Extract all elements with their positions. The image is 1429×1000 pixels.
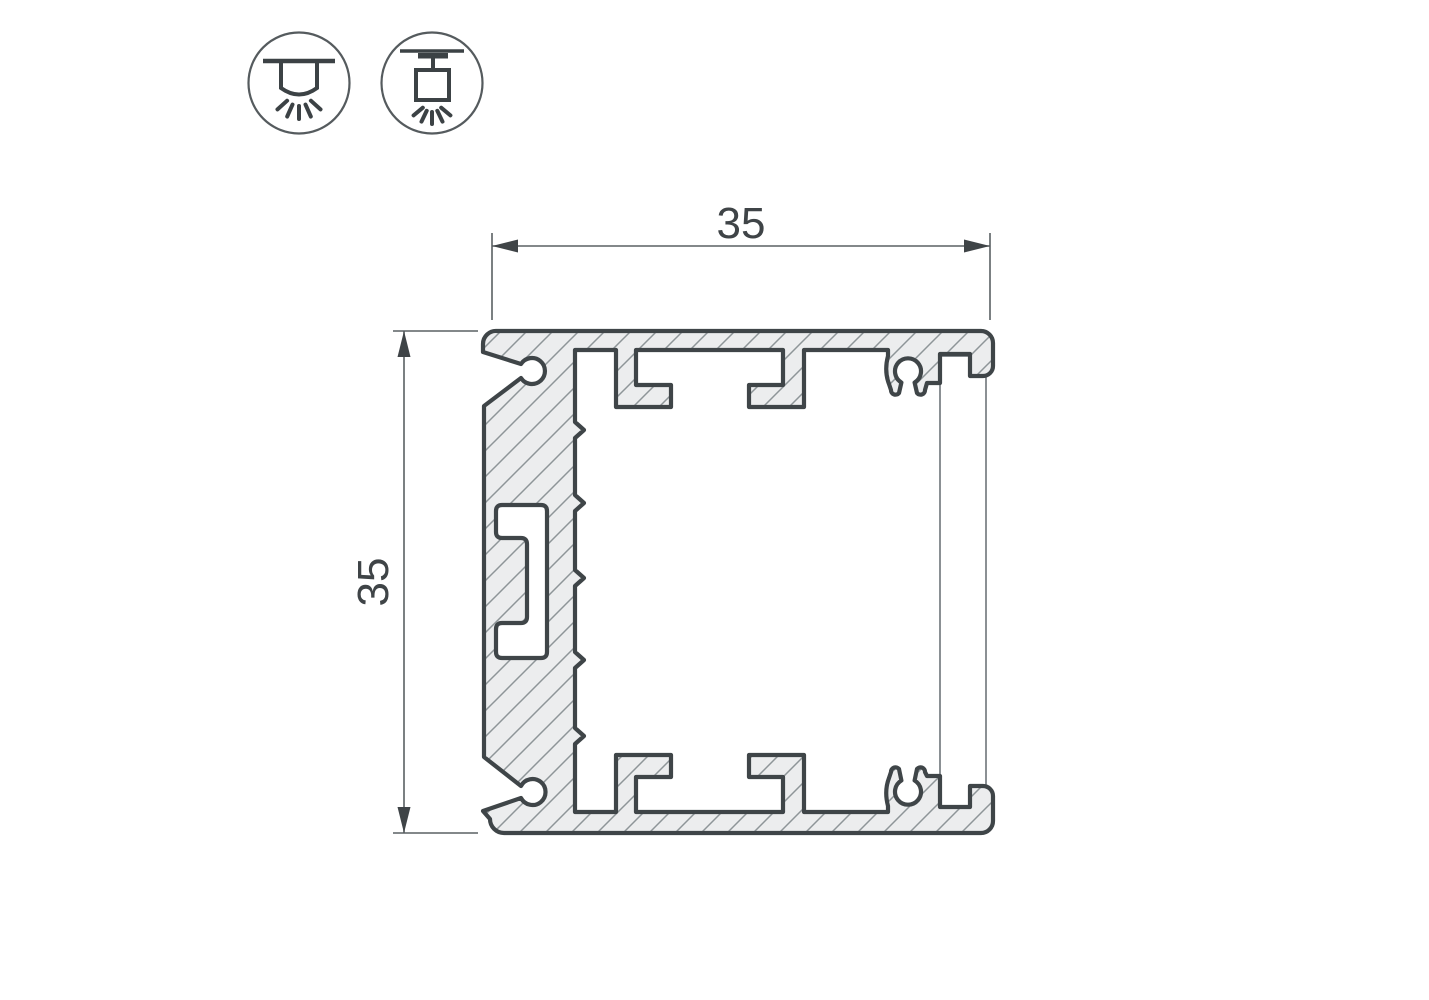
arrowhead-top <box>398 331 411 357</box>
diffuser-plate <box>940 356 986 807</box>
arrowhead-bottom <box>398 807 411 833</box>
dimension-width-label: 35 <box>717 199 766 248</box>
profile-drawing-canvas: 35 35 <box>0 0 1429 1000</box>
pendant-mount-light-icon <box>382 33 483 134</box>
dimension-height-label: 35 <box>349 558 398 607</box>
dimension-vertical <box>393 331 478 833</box>
surface-mount-light-icon <box>249 33 350 134</box>
drawing-page: 35 35 <box>0 0 1429 1000</box>
profile-cross-section <box>483 331 993 833</box>
arrowhead-right <box>964 240 990 253</box>
arrowhead-left <box>492 240 518 253</box>
